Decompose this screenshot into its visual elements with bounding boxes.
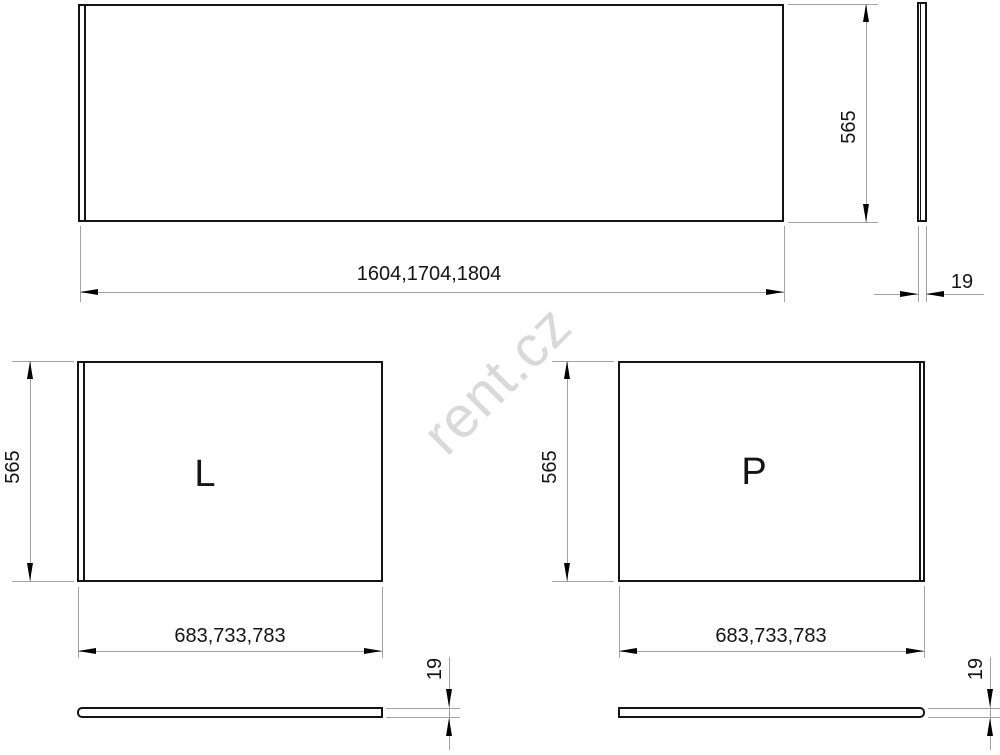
drawing-canvas: rent.cz 1604,1704,1804 565 19 L 565 683,…: [0, 0, 1000, 755]
front-panel-side-view: [917, 2, 927, 222]
left-thickness-arrow-top: [446, 689, 452, 707]
right-height-arrow-bottom: [564, 563, 570, 581]
right-panel-face: [618, 361, 925, 582]
front-width-dim-line: [80, 292, 784, 293]
left-thickness-arrow-bottom: [446, 718, 452, 736]
left-width-ext-line-right: [382, 587, 383, 658]
front-thickness-ext-line-left: [918, 226, 919, 302]
right-thickness-label: 19: [966, 658, 986, 680]
left-width-dim-line: [78, 651, 382, 652]
front-panel-left-edge-line: [84, 6, 86, 220]
right-thickness-arrow-bottom: [987, 718, 993, 736]
front-height-arrow-top: [863, 4, 869, 22]
left-height-label: 565: [3, 450, 23, 483]
right-height-dim-line: [567, 361, 568, 581]
right-height-arrow-top: [564, 361, 570, 379]
right-panel-top-view: [618, 707, 925, 718]
front-panel-side-inner-line: [920, 4, 921, 220]
front-thickness-arrow-left: [900, 291, 918, 297]
left-panel-top-view: [77, 707, 383, 718]
front-thickness-arrow-right: [926, 291, 944, 297]
right-height-ext-line-top: [552, 361, 614, 362]
left-panel-edge-line: [83, 363, 85, 580]
left-panel-letter: L: [194, 455, 215, 493]
right-width-arrow-left: [619, 648, 637, 654]
left-width-arrow-right: [364, 648, 382, 654]
right-panel-letter: P: [741, 453, 766, 491]
front-width-label: 1604,1704,1804: [357, 264, 502, 284]
front-width-ext-line-right: [784, 226, 785, 302]
left-height-ext-line-bottom: [12, 581, 74, 582]
right-height-label: 565: [540, 450, 560, 483]
right-width-ext-line-right: [924, 586, 925, 658]
right-width-label: 683,733,783: [715, 626, 826, 646]
right-width-dim-line: [619, 651, 924, 652]
left-height-ext-line-top: [12, 361, 74, 362]
watermark-text: rent.cz: [409, 292, 584, 467]
front-width-arrow-right: [766, 289, 784, 295]
front-height-label: 565: [839, 110, 859, 143]
front-height-arrow-bottom: [863, 204, 869, 222]
left-height-arrow-top: [27, 361, 33, 379]
right-height-ext-line-bottom: [552, 581, 614, 582]
left-height-dim-line: [30, 361, 31, 581]
left-thickness-label: 19: [425, 658, 445, 680]
left-height-arrow-bottom: [27, 563, 33, 581]
front-height-dim-line: [866, 4, 867, 222]
right-width-arrow-right: [906, 648, 924, 654]
right-panel-edge-line: [919, 363, 921, 580]
left-panel-face: [77, 361, 383, 582]
left-width-label: 683,733,783: [174, 626, 285, 646]
left-width-arrow-left: [78, 648, 96, 654]
front-height-ext-line-bottom: [788, 222, 878, 223]
front-panel-face: [78, 4, 784, 222]
right-thickness-arrow-top: [987, 689, 993, 707]
front-thickness-label: 19: [951, 272, 973, 292]
front-width-arrow-left: [80, 289, 98, 295]
